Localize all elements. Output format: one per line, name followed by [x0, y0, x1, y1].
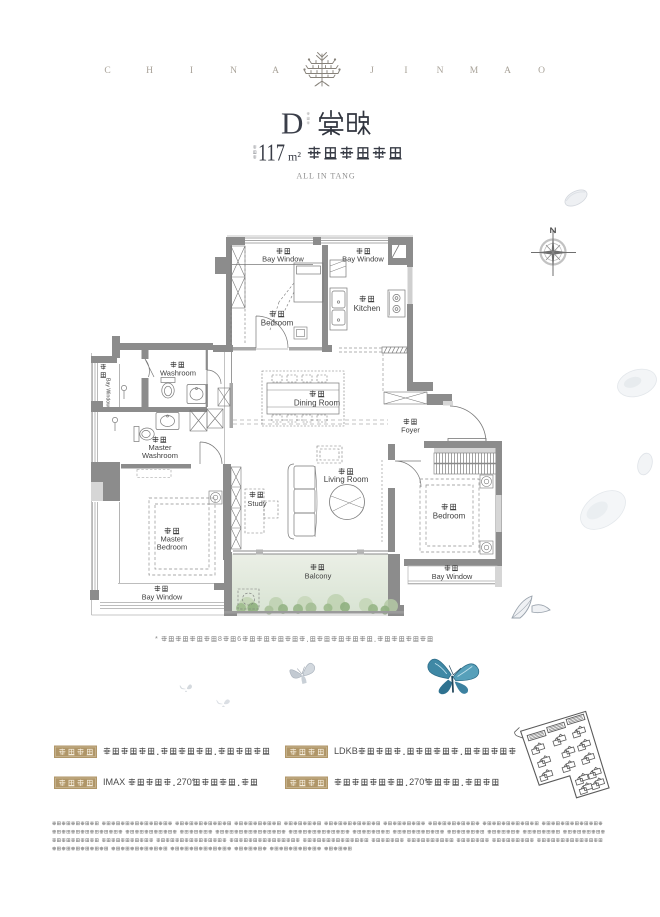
svg-text:O: O: [538, 66, 545, 76]
svg-text:M: M: [470, 66, 479, 76]
svg-text:Washroom: Washroom: [142, 451, 178, 460]
svg-text:H: H: [146, 66, 153, 76]
svg-text:*: *: [155, 634, 158, 643]
svg-text:D: D: [281, 106, 303, 141]
svg-text:Bedroom: Bedroom: [433, 512, 466, 521]
svg-text:C: C: [104, 66, 110, 76]
svg-text:I: I: [190, 66, 193, 76]
svg-text:ALL IN TANG: ALL IN TANG: [296, 172, 355, 181]
svg-text:LDKB: LDKB: [334, 746, 358, 756]
svg-text:6: 6: [237, 634, 241, 643]
svg-text:J: J: [370, 66, 374, 76]
svg-text:Living Room: Living Room: [324, 475, 369, 484]
svg-text:Dining Room: Dining Room: [294, 399, 341, 408]
svg-text:270°: 270°: [177, 777, 196, 787]
svg-text:A: A: [272, 66, 279, 76]
svg-text:A: A: [504, 66, 511, 76]
svg-text:Bedroom: Bedroom: [157, 543, 187, 552]
svg-text:Bay Window: Bay Window: [142, 593, 183, 602]
svg-text:IMAX: IMAX: [103, 777, 125, 787]
svg-text:Washroom: Washroom: [160, 369, 196, 378]
svg-text:Bay Window: Bay Window: [432, 572, 473, 581]
svg-text:m²: m²: [288, 150, 301, 164]
svg-text:Balcony: Balcony: [305, 572, 332, 581]
svg-text:N: N: [230, 66, 237, 76]
svg-text:117: 117: [258, 141, 285, 167]
svg-text:8: 8: [218, 634, 222, 643]
svg-text:270°: 270°: [409, 777, 428, 787]
svg-text:Kitchen: Kitchen: [354, 304, 381, 313]
svg-text:N: N: [437, 66, 444, 76]
svg-text:Foyer: Foyer: [401, 426, 420, 435]
svg-text:Bay Window: Bay Window: [342, 255, 384, 264]
svg-text:Bedroom: Bedroom: [261, 319, 294, 328]
svg-text:Bay Window: Bay Window: [262, 255, 304, 264]
svg-text:I: I: [404, 66, 407, 76]
svg-text:Bay Window: Bay Window: [105, 378, 111, 407]
